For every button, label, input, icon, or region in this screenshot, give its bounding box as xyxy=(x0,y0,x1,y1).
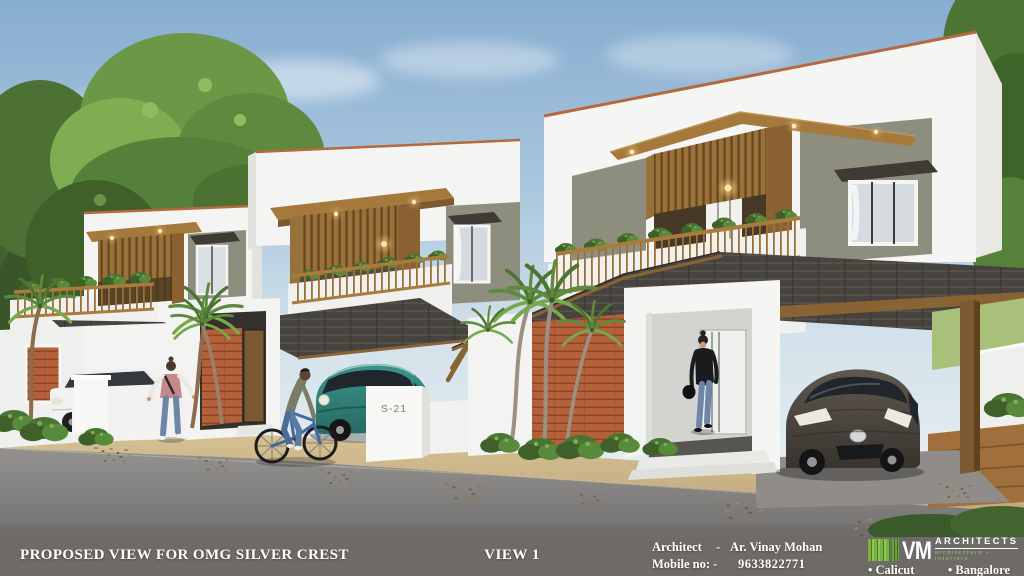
mobile-label: Mobile no: - xyxy=(652,556,730,573)
mobile-number: 9633822771 xyxy=(738,557,806,571)
architect-dash: - xyxy=(716,539,730,556)
logo-tagline: architecture • interiors xyxy=(935,550,1018,562)
architect-label: Architect xyxy=(652,539,716,556)
logo-mark-icon xyxy=(868,539,899,561)
vm-architects-logo: VM ARCHITECTS architecture • interiors •… xyxy=(868,538,1014,576)
view-label: VIEW 1 xyxy=(484,547,540,564)
project-title: PROPOSED VIEW FOR OMG SILVER CREST xyxy=(20,547,349,564)
footer-bar: PROPOSED VIEW FOR OMG SILVER CREST VIEW … xyxy=(0,537,1024,576)
architectural-rendering-sheet: S-21 xyxy=(0,0,1024,576)
architect-info: Architect-Ar. Vinay Mohan Mobile no: -96… xyxy=(652,539,822,573)
location-bangalore: • Bangalore xyxy=(948,563,1010,576)
rendering-scene: S-21 xyxy=(0,0,1024,537)
logo-locations: • Calicut • Bangalore xyxy=(868,563,1010,576)
logo-name: ARCHITECTS xyxy=(935,536,1018,549)
logo-initials: VM xyxy=(902,540,930,562)
gate-plate-number: S-21 xyxy=(381,403,407,415)
architect-name: Ar. Vinay Mohan xyxy=(730,540,822,554)
